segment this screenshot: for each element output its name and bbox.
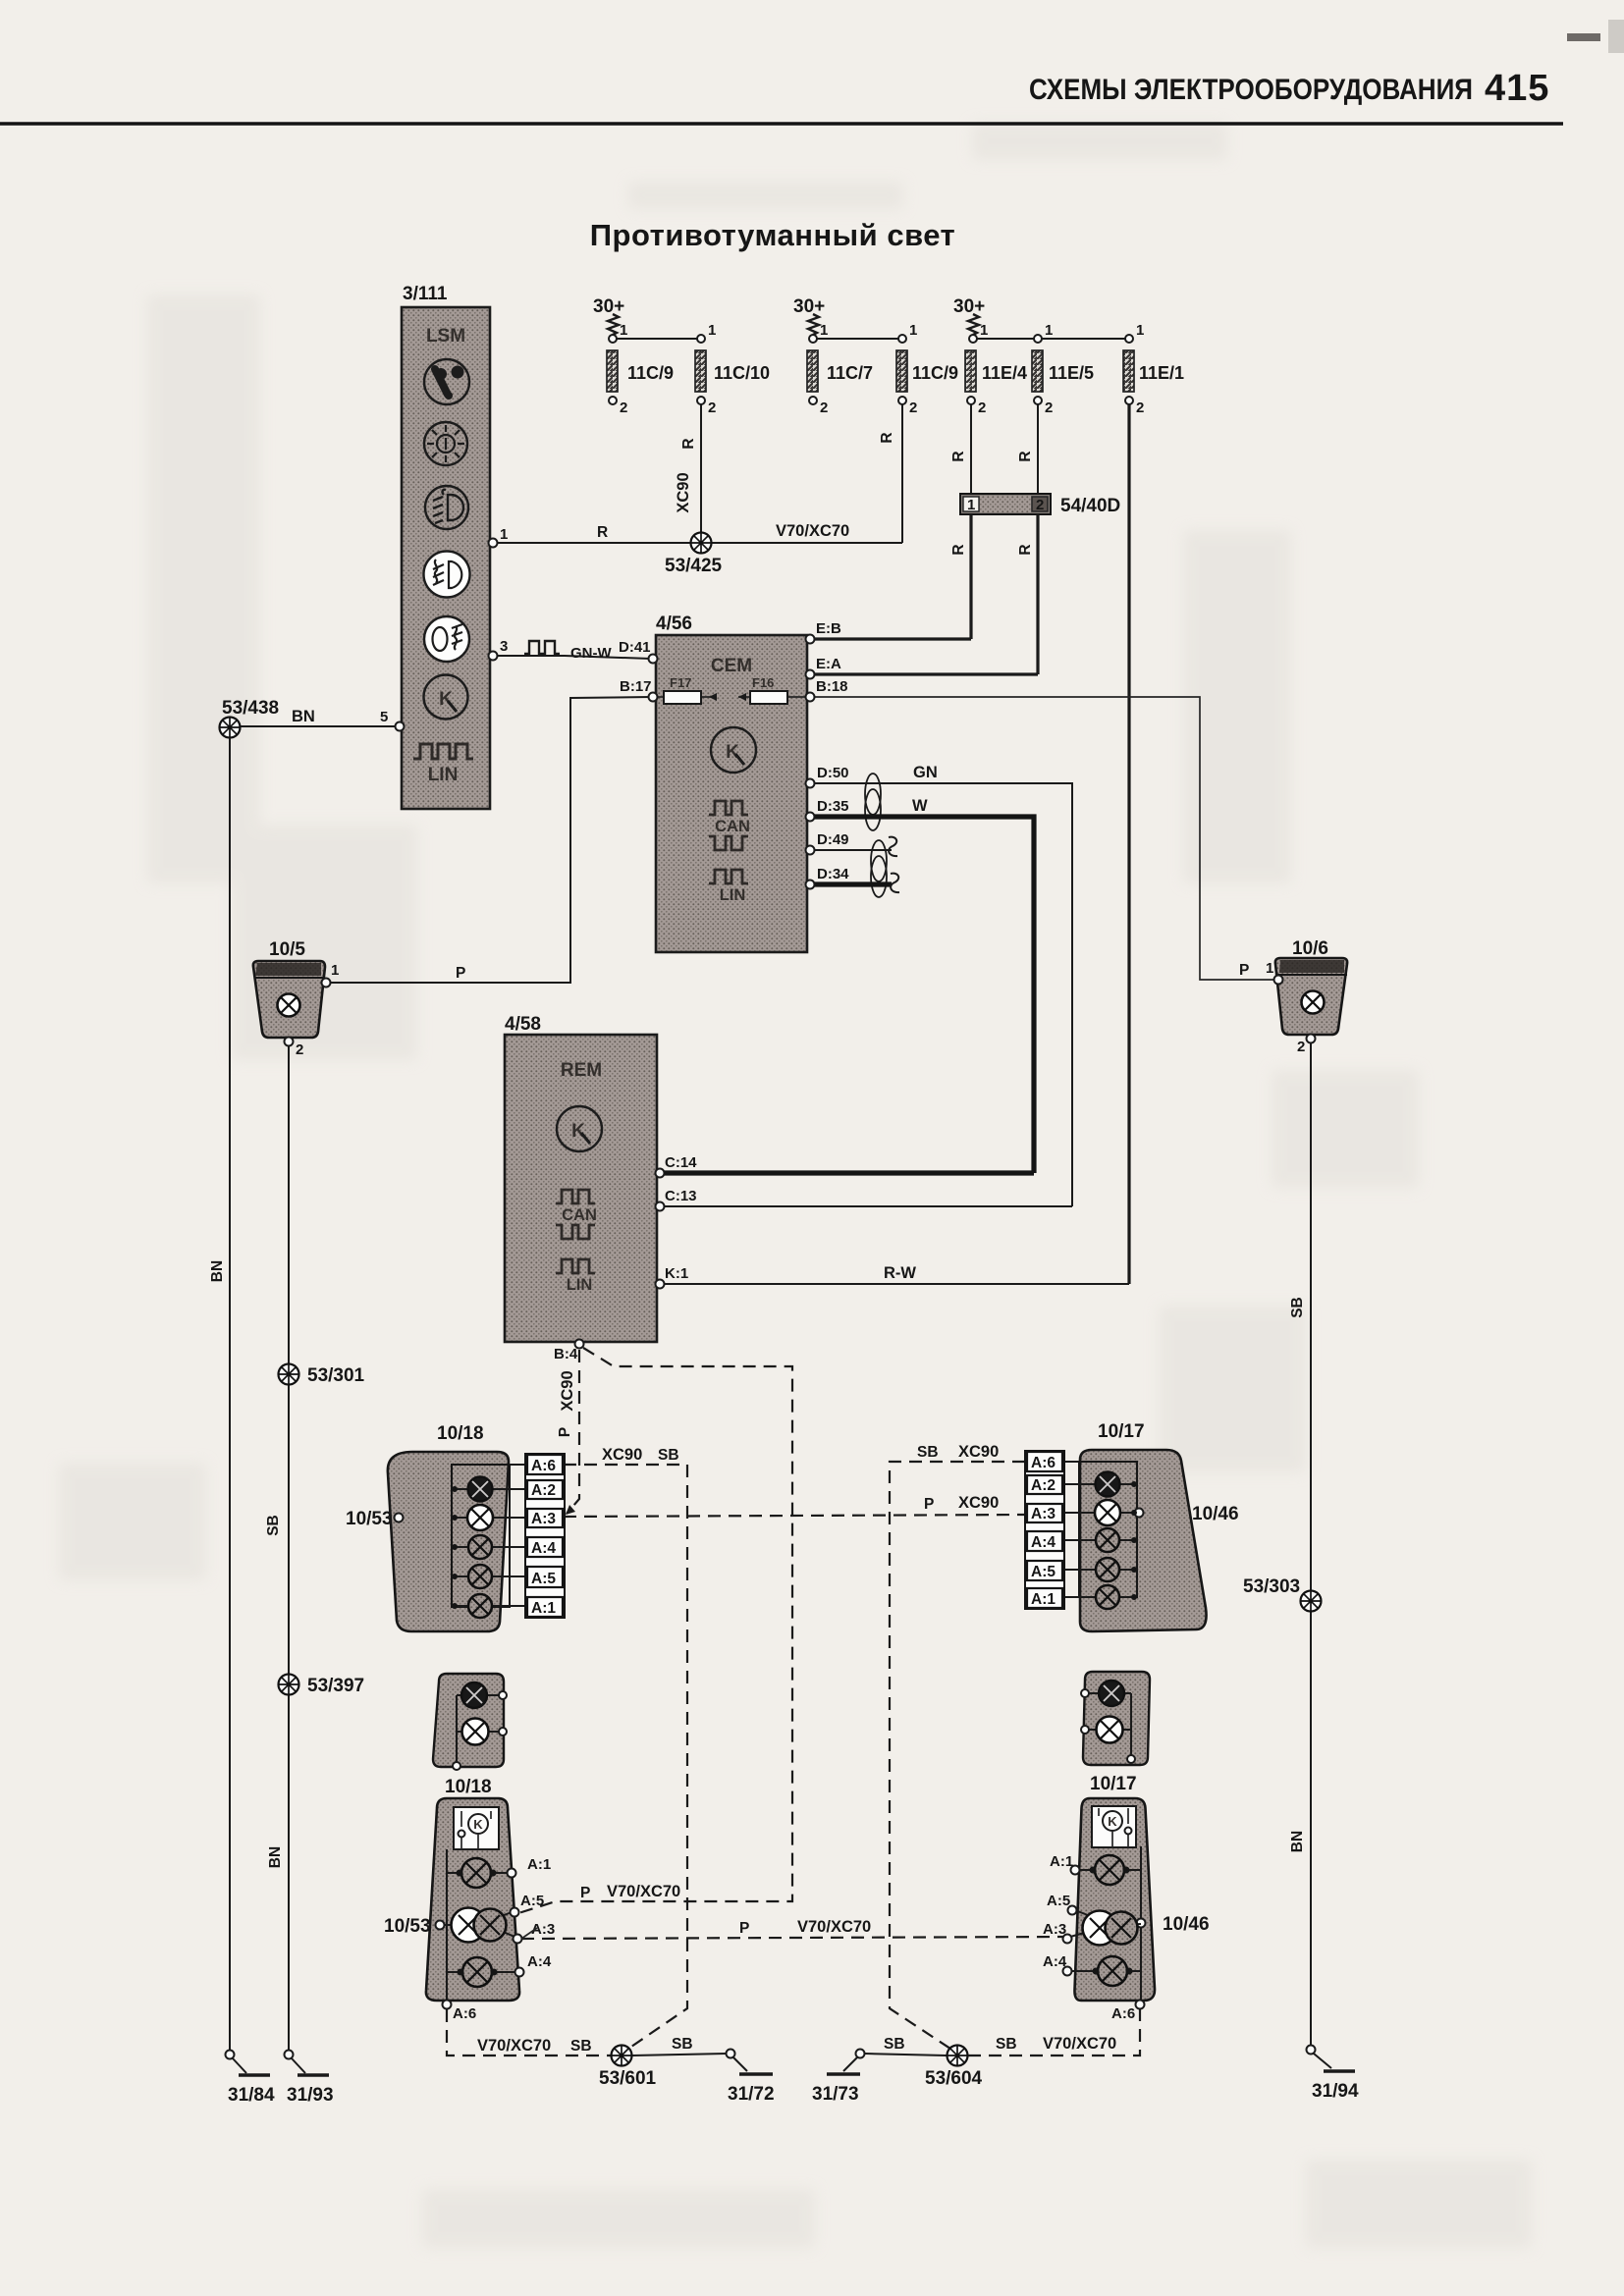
svg-text:1: 1: [909, 322, 917, 339]
svg-text:11E/5: 11E/5: [1049, 363, 1094, 383]
svg-text:A:1: A:1: [527, 1856, 551, 1873]
svg-text:1: 1: [980, 322, 988, 339]
svg-text:C:14: C:14: [665, 1154, 697, 1171]
svg-text:D:41: D:41: [619, 639, 651, 656]
svg-text:Противотуманный свет: Противотуманный свет: [590, 218, 955, 252]
svg-text:53/425: 53/425: [665, 556, 723, 576]
svg-text:XC90: XC90: [958, 1494, 999, 1512]
svg-text:11E/1: 11E/1: [1139, 363, 1184, 383]
svg-text:LIN: LIN: [428, 765, 459, 785]
svg-text:K: K: [1108, 1814, 1117, 1829]
svg-text:V70/XC70: V70/XC70: [1043, 2035, 1116, 2053]
svg-text:P: P: [1239, 962, 1249, 979]
svg-text:P: P: [557, 1427, 573, 1437]
svg-text:2: 2: [620, 400, 627, 416]
svg-text:31/84: 31/84: [228, 2085, 275, 2106]
svg-text:1: 1: [1266, 960, 1273, 977]
svg-text:B:17: B:17: [620, 678, 652, 695]
svg-text:10/53: 10/53: [346, 1509, 393, 1529]
svg-text:A:3: A:3: [1043, 1921, 1066, 1938]
svg-text:B:18: B:18: [816, 678, 848, 695]
svg-text:10/17: 10/17: [1090, 1774, 1137, 1794]
svg-text:P: P: [456, 965, 465, 982]
svg-text:A:3: A:3: [531, 1511, 556, 1527]
svg-text:SB: SB: [672, 2036, 693, 2053]
svg-text:53/604: 53/604: [925, 2068, 983, 2089]
svg-text:11C/7: 11C/7: [827, 363, 873, 383]
svg-text:2: 2: [978, 400, 986, 416]
svg-text:K: K: [473, 1817, 483, 1832]
svg-text:B:4: B:4: [554, 1346, 578, 1362]
svg-text:53/303: 53/303: [1243, 1576, 1300, 1597]
svg-text:53/438: 53/438: [222, 698, 279, 719]
svg-text:53/301: 53/301: [307, 1365, 365, 1386]
svg-text:P: P: [580, 1885, 590, 1901]
svg-text:1: 1: [331, 962, 339, 979]
svg-text:BN: BN: [1289, 1831, 1306, 1852]
svg-text:1: 1: [620, 322, 627, 339]
svg-text:10/18: 10/18: [445, 1777, 492, 1797]
svg-text:2: 2: [296, 1041, 303, 1058]
svg-text:5: 5: [380, 709, 388, 725]
svg-text:XC90: XC90: [559, 1370, 576, 1411]
svg-text:A:4: A:4: [1031, 1534, 1056, 1551]
svg-text:3: 3: [500, 638, 508, 655]
svg-text:BN: BN: [292, 708, 315, 725]
svg-text:A:4: A:4: [531, 1540, 556, 1557]
svg-text:A:5: A:5: [1047, 1893, 1070, 1909]
svg-text:54/40D: 54/40D: [1060, 496, 1120, 516]
svg-text:4/56: 4/56: [656, 614, 692, 634]
svg-text:SB: SB: [1289, 1297, 1306, 1318]
svg-text:СХЕМЫ ЭЛЕКТРООБОРУДОВАНИЯ: СХЕМЫ ЭЛЕКТРООБОРУДОВАНИЯ: [1029, 74, 1473, 106]
svg-text:K: K: [571, 1121, 585, 1142]
svg-text:A:2: A:2: [1031, 1477, 1056, 1494]
svg-text:A:1: A:1: [531, 1600, 556, 1617]
svg-text:D:49: D:49: [817, 831, 849, 848]
svg-text:1: 1: [967, 497, 975, 513]
svg-text:2: 2: [820, 400, 828, 416]
svg-text:XC90: XC90: [675, 472, 692, 512]
svg-text:CEM: CEM: [711, 656, 752, 676]
svg-text:SB: SB: [884, 2036, 905, 2053]
svg-text:D:34: D:34: [817, 866, 849, 882]
svg-text:D:50: D:50: [817, 765, 849, 781]
svg-text:A:6: A:6: [531, 1458, 556, 1474]
svg-text:GN-W: GN-W: [570, 645, 612, 662]
svg-text:R: R: [680, 438, 697, 449]
svg-text:1: 1: [1136, 322, 1144, 339]
svg-text:P: P: [924, 1496, 934, 1513]
svg-text:11E/4: 11E/4: [982, 363, 1027, 383]
svg-text:R: R: [950, 544, 967, 555]
svg-text:C:13: C:13: [665, 1188, 697, 1204]
svg-text:V70/XC70: V70/XC70: [797, 1918, 871, 1936]
svg-text:SB: SB: [265, 1515, 282, 1536]
svg-text:11C/9: 11C/9: [912, 363, 958, 383]
svg-text:BN: BN: [267, 1846, 284, 1868]
svg-text:BN: BN: [209, 1260, 226, 1282]
svg-text:A:5: A:5: [531, 1571, 556, 1587]
svg-text:SB: SB: [917, 1444, 939, 1461]
svg-text:A:6: A:6: [1031, 1455, 1056, 1471]
svg-text:A:1: A:1: [1031, 1591, 1056, 1608]
svg-text:10/46: 10/46: [1163, 1914, 1210, 1935]
svg-text:D:35: D:35: [817, 798, 849, 815]
svg-text:R: R: [1017, 451, 1034, 461]
svg-text:A:4: A:4: [527, 1953, 552, 1970]
svg-text:A:6: A:6: [453, 2005, 476, 2022]
svg-text:F17: F17: [670, 675, 691, 690]
svg-text:R: R: [597, 524, 608, 541]
svg-text:A:6: A:6: [1111, 2005, 1135, 2022]
svg-text:GN: GN: [913, 764, 938, 781]
svg-text:SB: SB: [658, 1447, 679, 1464]
svg-text:2: 2: [1036, 497, 1044, 513]
svg-text:10/46: 10/46: [1192, 1504, 1239, 1524]
svg-text:1: 1: [820, 322, 828, 339]
svg-text:A:3: A:3: [1031, 1506, 1056, 1522]
svg-text:11C/10: 11C/10: [714, 363, 770, 383]
svg-text:K:1: K:1: [665, 1265, 688, 1282]
svg-text:XC90: XC90: [958, 1443, 999, 1461]
svg-text:53/397: 53/397: [307, 1676, 364, 1696]
svg-text:E:B: E:B: [816, 620, 841, 637]
svg-text:A:5: A:5: [1031, 1564, 1056, 1580]
svg-text:REM: REM: [561, 1060, 602, 1081]
svg-text:XC90: XC90: [602, 1446, 642, 1464]
svg-text:1: 1: [1045, 322, 1053, 339]
svg-text:415: 415: [1485, 68, 1549, 109]
svg-text:CAN: CAN: [562, 1206, 597, 1224]
svg-text:A:2: A:2: [531, 1482, 556, 1499]
svg-text:30+: 30+: [593, 296, 624, 317]
svg-text:2: 2: [1045, 400, 1053, 416]
svg-text:R: R: [1017, 544, 1034, 555]
svg-text:3/111: 3/111: [403, 284, 448, 304]
svg-text:10/53: 10/53: [384, 1916, 431, 1937]
svg-text:10/18: 10/18: [437, 1423, 484, 1444]
svg-text:2: 2: [708, 400, 716, 416]
svg-text:31/94: 31/94: [1312, 2081, 1359, 2102]
svg-text:31/72: 31/72: [728, 2084, 775, 2105]
svg-text:R: R: [879, 432, 895, 443]
svg-text:1: 1: [500, 526, 508, 543]
svg-text:E:A: E:A: [816, 656, 841, 672]
svg-text:31/73: 31/73: [812, 2084, 859, 2105]
svg-text:10/6: 10/6: [1292, 938, 1328, 959]
svg-text:10/5: 10/5: [269, 939, 305, 960]
svg-text:11C/9: 11C/9: [627, 363, 674, 383]
svg-text:V70/XC70: V70/XC70: [776, 522, 849, 540]
svg-text:CAN: CAN: [715, 818, 750, 835]
svg-text:R-W: R-W: [884, 1264, 916, 1282]
svg-text:A:5: A:5: [520, 1893, 544, 1909]
svg-text:LIN: LIN: [720, 886, 746, 904]
svg-text:30+: 30+: [793, 296, 825, 317]
svg-text:P: P: [739, 1920, 749, 1937]
svg-text:2: 2: [1297, 1039, 1305, 1055]
svg-text:W: W: [912, 797, 928, 815]
svg-text:V70/XC70: V70/XC70: [607, 1883, 680, 1900]
svg-text:A:4: A:4: [1043, 1953, 1067, 1970]
svg-text:30+: 30+: [953, 296, 985, 317]
svg-text:4/58: 4/58: [505, 1014, 541, 1035]
svg-text:31/93: 31/93: [287, 2085, 334, 2106]
svg-text:R: R: [950, 451, 967, 461]
svg-text:53/601: 53/601: [599, 2068, 657, 2089]
svg-text:V70/XC70: V70/XC70: [477, 2037, 551, 2055]
svg-text:A:1: A:1: [1050, 1853, 1073, 1870]
svg-text:2: 2: [1136, 400, 1144, 416]
svg-text:LSM: LSM: [426, 326, 465, 347]
svg-text:2: 2: [909, 400, 917, 416]
svg-text:F16: F16: [752, 675, 774, 690]
svg-text:1: 1: [708, 322, 716, 339]
svg-text:LIN: LIN: [567, 1276, 593, 1294]
svg-text:SB: SB: [570, 2038, 592, 2055]
svg-text:K: K: [726, 742, 739, 763]
svg-text:SB: SB: [996, 2036, 1017, 2053]
svg-text:10/17: 10/17: [1098, 1421, 1145, 1442]
